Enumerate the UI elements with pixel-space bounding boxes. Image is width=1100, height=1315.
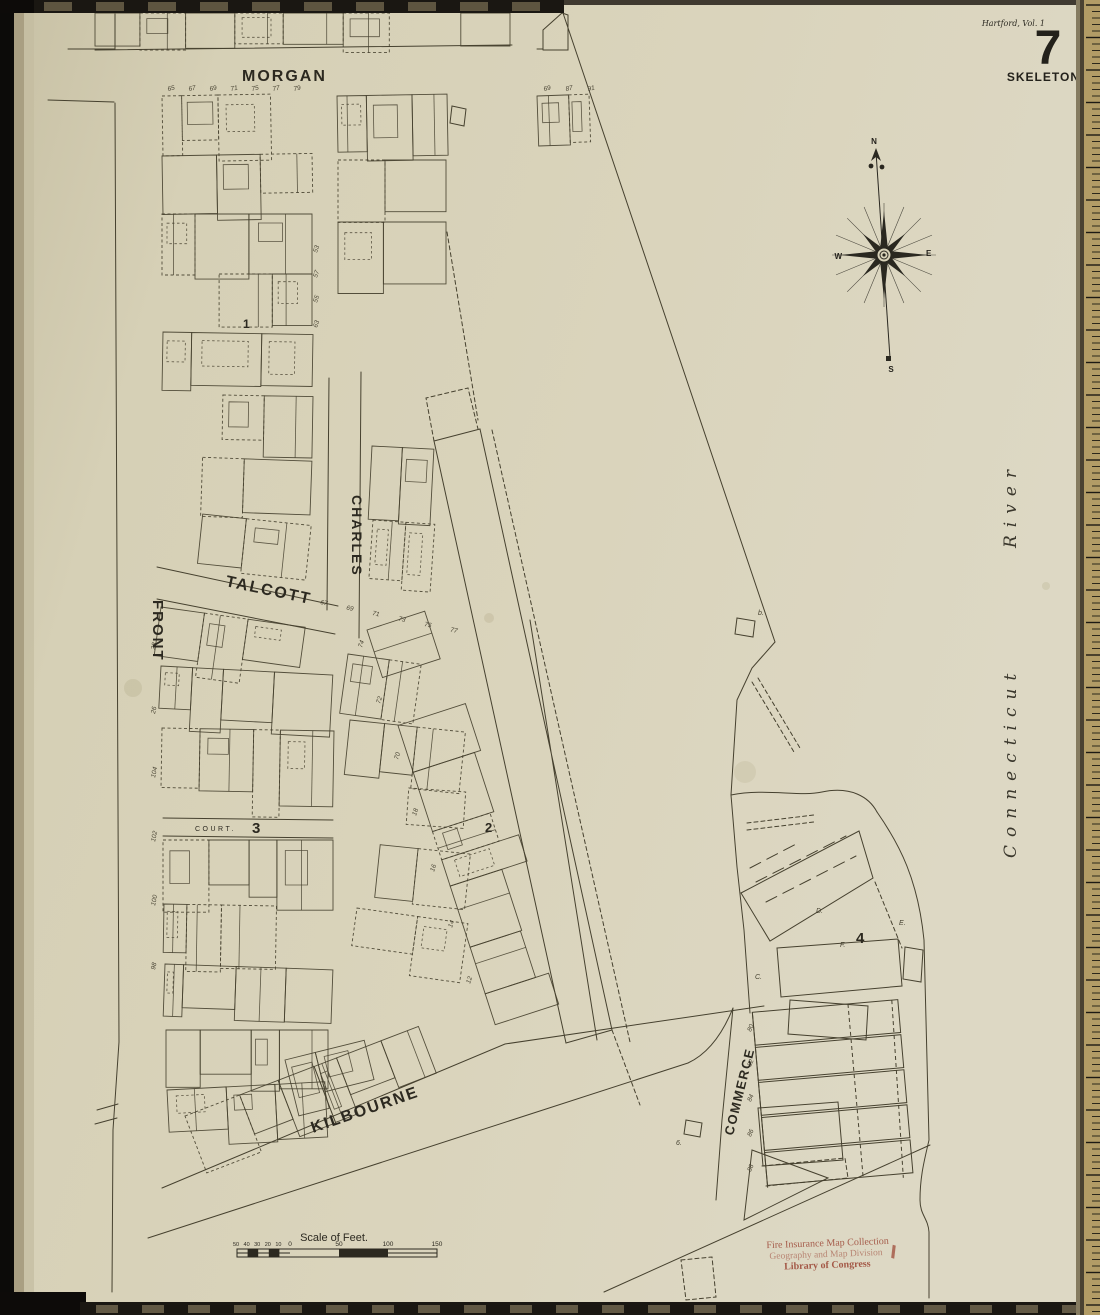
ruler-mark xyxy=(96,1305,118,1313)
ruler-mark xyxy=(96,2,124,11)
river-label-word1: Connecticut xyxy=(1001,666,1021,858)
ruler-mark xyxy=(304,2,332,11)
ruler-mark xyxy=(740,1305,762,1313)
ruler-mark xyxy=(786,1305,808,1313)
ruler-mark xyxy=(44,2,72,11)
compass-west-label: W xyxy=(834,252,842,261)
compass-east-label: E xyxy=(926,249,932,258)
compass-north-label: N xyxy=(871,137,877,146)
ruler-mark xyxy=(556,1305,578,1313)
ruler-mark xyxy=(234,1305,256,1313)
ruler-mark xyxy=(142,1305,164,1313)
sheet-type-skeleton: SKELETON xyxy=(1007,70,1080,84)
ruler-mark xyxy=(1016,1305,1038,1313)
building-letter-f: F. xyxy=(840,942,845,949)
building-letter-e: E. xyxy=(899,920,906,927)
scale-left-label: 50 xyxy=(233,1242,239,1248)
street-label-court: COURT. xyxy=(195,826,236,833)
ruler-mark xyxy=(252,2,280,11)
ruler-mark xyxy=(924,1305,946,1313)
building-letter-c: C. xyxy=(755,974,762,981)
ruler-mark xyxy=(878,1305,900,1313)
ruler-mark xyxy=(188,1305,210,1313)
ruler-mark xyxy=(200,2,228,11)
page-edge-shadow xyxy=(1076,0,1080,1315)
scale-title: Scale of Feet. xyxy=(300,1232,368,1244)
scale-left-label: 10 xyxy=(275,1242,281,1248)
block-number-2: 2 xyxy=(485,820,492,835)
scale-zero-label: 0 xyxy=(288,1241,292,1248)
ruler-mark xyxy=(832,1305,854,1313)
scale-right-label: 100 xyxy=(383,1241,394,1248)
ruler-mark xyxy=(464,1305,486,1313)
building-letter-b: b. xyxy=(758,610,764,617)
ruler-mark xyxy=(602,1305,624,1313)
sanborn-map-page: 6567697175777969879167697173757774727018… xyxy=(0,0,1100,1315)
ruler-mark xyxy=(512,2,540,11)
block-number-4: 4 xyxy=(856,930,865,947)
ruler-mark xyxy=(280,1305,302,1313)
map-canvas: 6567697175777969879167697173757774727018… xyxy=(0,0,1100,1315)
ruler-mark xyxy=(510,1305,532,1313)
ruler-mark xyxy=(694,1305,716,1313)
block-number-1: 1 xyxy=(243,317,250,331)
ruler-mark xyxy=(356,2,384,11)
compass-south-label: S xyxy=(888,365,894,374)
bottom-left-corner xyxy=(0,1292,86,1315)
scale-left-label: 20 xyxy=(265,1242,271,1248)
ruler-mark xyxy=(970,1305,992,1313)
river-label-word2: River xyxy=(1001,462,1021,549)
sheet-number: 7 xyxy=(1035,22,1062,75)
building-letter-d: D. xyxy=(816,908,823,915)
scale-left-label: 40 xyxy=(244,1242,250,1248)
scale-right-label: 150 xyxy=(432,1241,443,1248)
building-letter-6: 6. xyxy=(676,1140,682,1147)
side-ruler xyxy=(1084,0,1100,1315)
block-number-3: 3 xyxy=(252,820,260,837)
ruler-mark xyxy=(648,1305,670,1313)
street-label-morgan: MORGAN xyxy=(242,68,327,85)
street-label-front: FRONT xyxy=(149,600,166,662)
ruler-mark xyxy=(460,2,488,11)
paper-background xyxy=(24,0,1080,1315)
book-spine xyxy=(0,0,14,1315)
ruler-mark xyxy=(372,1305,394,1313)
ruler-mark xyxy=(326,1305,348,1313)
ruler-mark xyxy=(148,2,176,11)
bottom-ruler-strip xyxy=(80,1302,1100,1315)
ruler-mark xyxy=(418,1305,440,1313)
street-label-charles: CHARLES xyxy=(349,495,365,577)
ruler-mark xyxy=(408,2,436,11)
scale-left-label: 30 xyxy=(254,1242,260,1248)
